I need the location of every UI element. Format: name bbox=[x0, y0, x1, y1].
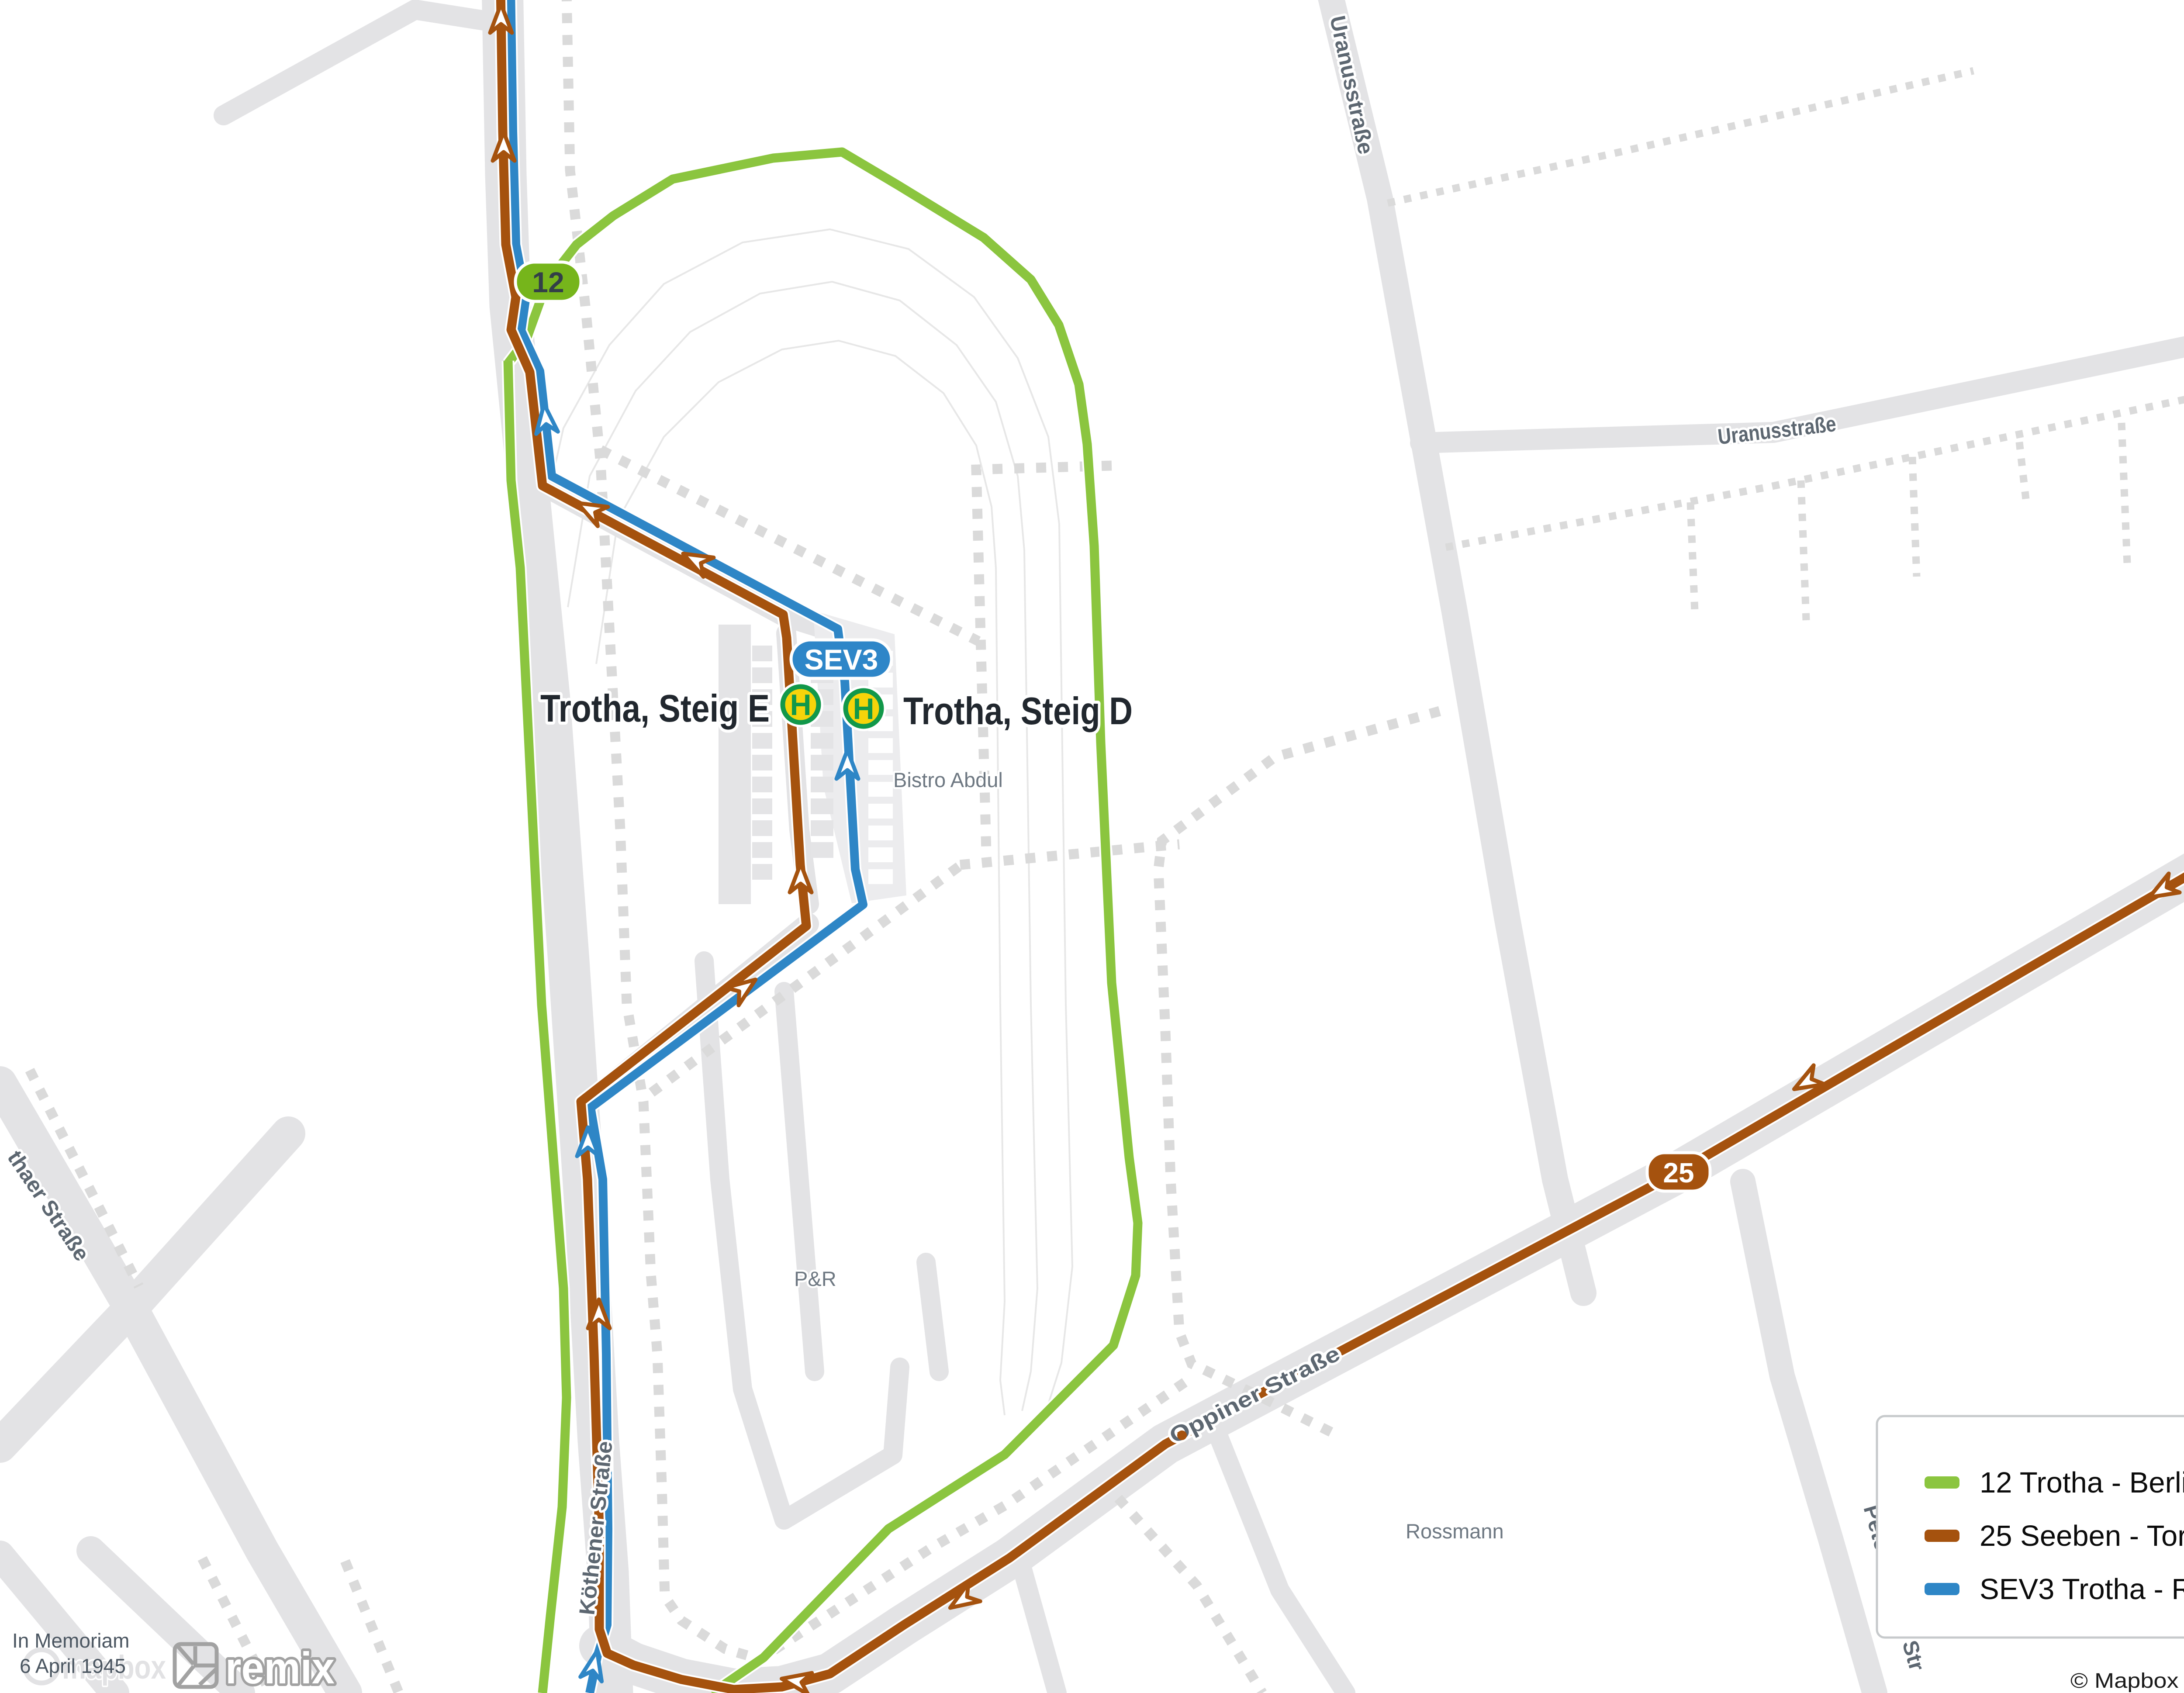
svg-text:25 Seeben - Tornau: 25 Seeben - Tornau bbox=[1980, 1520, 2184, 1552]
svg-text:H: H bbox=[853, 692, 874, 726]
svg-text:6 April 1945: 6 April 1945 bbox=[20, 1655, 126, 1677]
svg-text:12: 12 bbox=[532, 266, 564, 298]
svg-text:In Memoriam: In Memoriam bbox=[12, 1629, 129, 1652]
svg-text:Trotha, Steig D: Trotha, Steig D bbox=[903, 689, 1133, 732]
svg-text:remix: remix bbox=[225, 1643, 335, 1693]
svg-text:25: 25 bbox=[1663, 1157, 1694, 1189]
svg-text:Trotha, Steig E: Trotha, Steig E bbox=[540, 687, 770, 730]
svg-text:P&R: P&R bbox=[794, 1267, 836, 1290]
svg-text:12 Trotha - Berliner Brücke: 12 Trotha - Berliner Brücke bbox=[1980, 1466, 2184, 1499]
svg-text:Bistro Abdul: Bistro Abdul bbox=[893, 768, 1003, 791]
svg-text:H: H bbox=[790, 688, 811, 722]
svg-text:© Mapbox © OpenStreetMap: © Mapbox © OpenStreetMap bbox=[2070, 1669, 2184, 1693]
svg-text:SEV3: SEV3 bbox=[805, 643, 878, 676]
svg-text:SEV3 Trotha - Reileck: SEV3 Trotha - Reileck bbox=[1980, 1573, 2184, 1606]
svg-text:Rossmann: Rossmann bbox=[1406, 1520, 1504, 1543]
